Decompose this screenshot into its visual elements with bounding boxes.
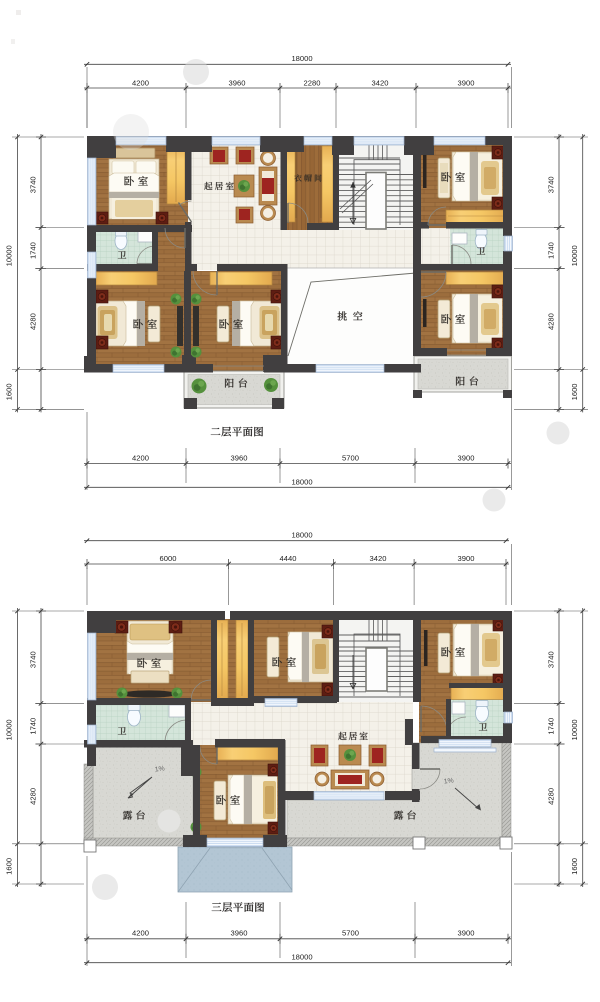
- svg-text:1600: 1600: [570, 858, 579, 875]
- svg-text:3740: 3740: [29, 651, 38, 668]
- svg-text:3960: 3960: [229, 79, 246, 88]
- svg-text:10000: 10000: [5, 719, 14, 740]
- svg-text:10000: 10000: [570, 245, 579, 266]
- svg-text:4280: 4280: [547, 788, 556, 805]
- svg-text:5700: 5700: [342, 929, 359, 938]
- svg-text:3900: 3900: [458, 554, 475, 563]
- svg-text:4280: 4280: [547, 313, 556, 330]
- svg-text:3960: 3960: [231, 454, 248, 463]
- svg-text:3900: 3900: [458, 929, 475, 938]
- svg-text:1740: 1740: [547, 242, 556, 259]
- svg-text:1740: 1740: [29, 242, 38, 259]
- svg-text:18000: 18000: [291, 54, 312, 63]
- svg-text:1%: 1%: [443, 777, 454, 785]
- svg-text:2280: 2280: [304, 79, 321, 88]
- svg-text:4440: 4440: [280, 554, 297, 563]
- svg-text:1%: 1%: [154, 765, 165, 773]
- svg-text:4200: 4200: [132, 454, 149, 463]
- svg-text:10000: 10000: [5, 245, 14, 266]
- svg-text:6000: 6000: [160, 554, 177, 563]
- svg-text:3740: 3740: [547, 651, 556, 668]
- svg-text:4280: 4280: [29, 313, 38, 330]
- svg-text:3420: 3420: [370, 554, 387, 563]
- svg-text:10000: 10000: [570, 719, 579, 740]
- svg-text:1600: 1600: [5, 383, 14, 400]
- svg-text:4200: 4200: [132, 929, 149, 938]
- svg-text:3900: 3900: [458, 79, 475, 88]
- svg-text:1600: 1600: [5, 858, 14, 875]
- svg-text:1740: 1740: [547, 718, 556, 735]
- svg-text:3740: 3740: [29, 176, 38, 193]
- svg-text:18000: 18000: [291, 531, 312, 540]
- svg-text:1600: 1600: [570, 383, 579, 400]
- svg-text:4280: 4280: [29, 788, 38, 805]
- svg-text:3740: 3740: [547, 176, 556, 193]
- svg-text:4200: 4200: [132, 79, 149, 88]
- svg-text:1740: 1740: [29, 718, 38, 735]
- svg-text:3960: 3960: [231, 929, 248, 938]
- svg-text:18000: 18000: [291, 478, 312, 487]
- svg-text:3900: 3900: [458, 454, 475, 463]
- svg-text:5700: 5700: [342, 454, 359, 463]
- svg-text:18000: 18000: [291, 953, 312, 962]
- svg-text:3420: 3420: [372, 79, 389, 88]
